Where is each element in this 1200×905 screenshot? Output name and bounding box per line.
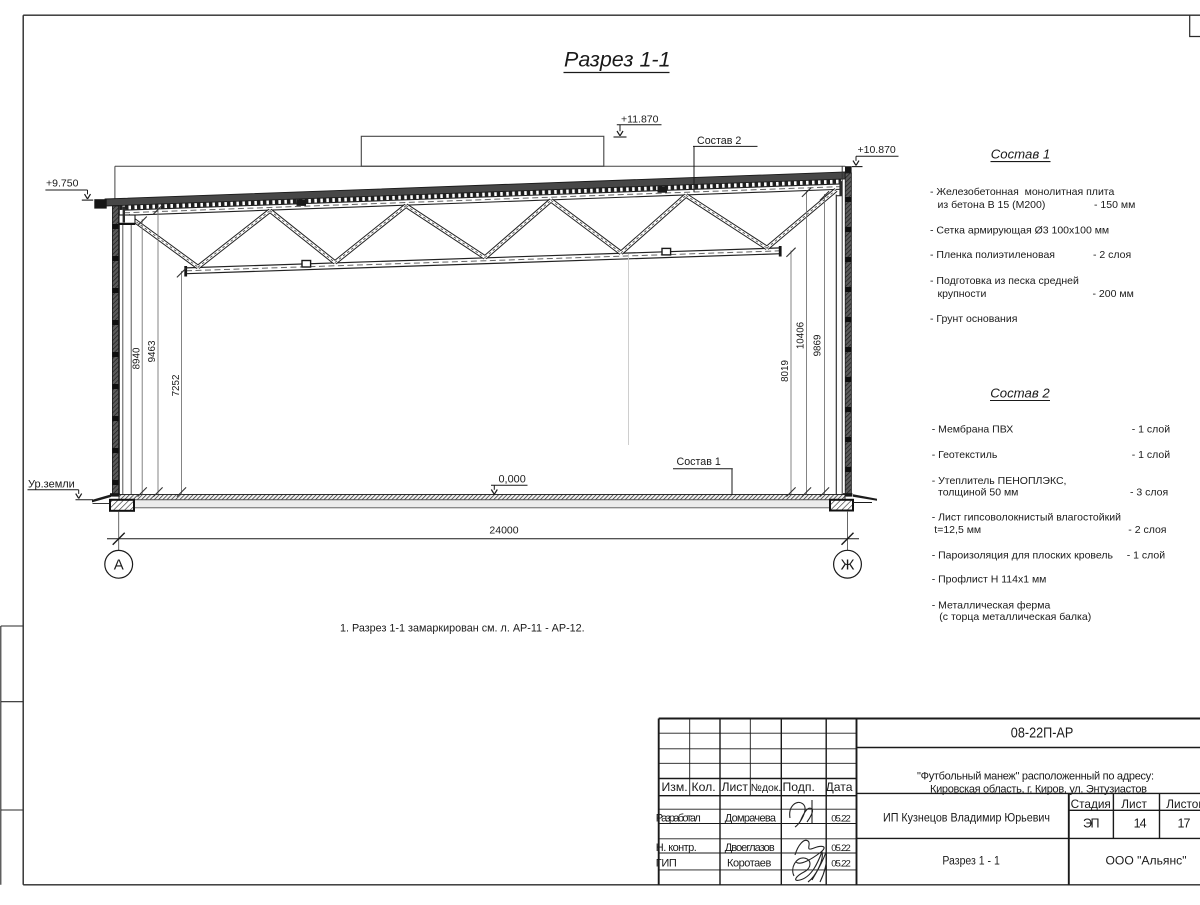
- svg-text:- Пленка полиэтиленовая: - Пленка полиэтиленовая: [930, 249, 1055, 261]
- svg-text:Состав 1: Состав 1: [991, 147, 1051, 162]
- svg-text:- 1 слой: - 1 слой: [1127, 550, 1166, 562]
- svg-text:9869: 9869: [813, 335, 824, 357]
- svg-text:- Железобетонная монолитная п: - Железобетонная монолитная плита: [930, 186, 1114, 198]
- svg-text:№док.: №док.: [751, 783, 781, 794]
- svg-text:14: 14: [1134, 817, 1147, 831]
- svg-text:0,000: 0,000: [499, 474, 526, 486]
- svg-text:1. Разрез 1-1 замаркирован см.: 1. Разрез 1-1 замаркирован см. л. АР-11 …: [340, 622, 585, 634]
- svg-text:Стадия: Стадия: [1071, 797, 1111, 811]
- svg-text:- Мембрана ПВХ: - Мембрана ПВХ: [932, 424, 1014, 436]
- svg-text:- 2 слоя: - 2 слоя: [1093, 249, 1131, 261]
- svg-text:7252: 7252: [171, 375, 182, 397]
- svg-text:Домрачева: Домрачева: [725, 812, 777, 824]
- svg-text:А: А: [114, 557, 124, 574]
- svg-text:t=12,5 мм: t=12,5 мм: [934, 524, 981, 536]
- svg-text:Разрез 1 - 1: Разрез 1 - 1: [942, 856, 999, 868]
- svg-text:Изм.: Изм.: [662, 780, 688, 794]
- svg-text:- 150 мм: - 150 мм: [1094, 199, 1135, 211]
- svg-text:Состав 2: Состав 2: [990, 385, 1050, 400]
- svg-text:Двоеглазов: Двоеглазов: [725, 842, 775, 854]
- svg-text:Ж: Ж: [841, 556, 855, 573]
- svg-text:ООО "Альянс": ООО "Альянс": [1106, 854, 1187, 868]
- svg-text:"Футбольный манеж" расположенн: "Футбольный манеж" расположенный по адре…: [917, 771, 1154, 783]
- svg-text:Лист: Лист: [722, 780, 749, 794]
- svg-text:- 1 слой: - 1 слой: [1132, 449, 1171, 461]
- svg-text:Разрез 1-1: Разрез 1-1: [564, 48, 671, 72]
- svg-text:- 2 слоя: - 2 слоя: [1128, 524, 1166, 536]
- svg-text:05.22: 05.22: [831, 843, 851, 854]
- svg-text:9463: 9463: [147, 340, 158, 362]
- svg-text:(с торца металлическая балка): (с торца металлическая балка): [939, 611, 1091, 623]
- svg-text:ГИП: ГИП: [656, 857, 677, 869]
- svg-text:крупности: крупности: [938, 288, 987, 300]
- svg-text:Кировская область, г. Киров, у: Кировская область, г. Киров, ул. Энтузиа…: [930, 784, 1147, 796]
- svg-text:8019: 8019: [780, 360, 791, 382]
- svg-text:- Пароизоляция для плоских кро: - Пароизоляция для плоских кровель: [932, 550, 1114, 562]
- svg-text:Ур.земли: Ур.земли: [28, 478, 75, 490]
- svg-text:- Геотекстиль: - Геотекстиль: [932, 449, 998, 461]
- svg-text:Состав 2: Состав 2: [697, 135, 741, 147]
- svg-text:Дата: Дата: [826, 780, 853, 794]
- svg-text:Коротаев: Коротаев: [727, 857, 771, 869]
- svg-text:Лист: Лист: [1121, 797, 1147, 811]
- svg-text:17: 17: [1178, 817, 1191, 831]
- svg-text:24000: 24000: [489, 525, 518, 537]
- svg-text:+10.870: +10.870: [858, 144, 896, 156]
- svg-text:ЭП: ЭП: [1083, 817, 1100, 831]
- svg-text:- Металлическая ферма: - Металлическая ферма: [932, 600, 1051, 612]
- svg-text:- Профлист Н 114х1 мм: - Профлист Н 114х1 мм: [932, 574, 1047, 586]
- svg-text:- Подготовка из песка средней: - Подготовка из песка средней: [930, 275, 1079, 287]
- svg-text:- Грунт основания: - Грунт основания: [930, 313, 1017, 325]
- svg-text:- 3 слоя: - 3 слоя: [1130, 486, 1168, 498]
- svg-text:Кол.: Кол.: [692, 780, 716, 794]
- svg-text:- 200 мм: - 200 мм: [1093, 288, 1134, 300]
- svg-text:из бетона В 15 (М200): из бетона В 15 (М200): [938, 199, 1046, 211]
- svg-text:Листов: Листов: [1166, 797, 1200, 811]
- svg-text:08-22П-АР: 08-22П-АР: [1011, 726, 1074, 742]
- svg-text:+11.870: +11.870: [621, 114, 659, 126]
- svg-text:+9.750: +9.750: [46, 178, 79, 190]
- svg-text:Разработал: Разработал: [656, 812, 701, 824]
- svg-text:8940: 8940: [131, 347, 142, 369]
- svg-text:толщиной 50 мм: толщиной 50 мм: [938, 486, 1018, 498]
- svg-text:- 1 слой: - 1 слой: [1132, 424, 1171, 436]
- svg-text:05.22: 05.22: [831, 813, 851, 824]
- svg-text:Состав 1: Состав 1: [677, 456, 721, 468]
- svg-text:10406: 10406: [796, 321, 807, 349]
- svg-text:- Сетка армирующая Ø3 100х100: - Сетка армирующая Ø3 100х100 мм: [930, 224, 1109, 236]
- svg-text:ИП Кузнецов Владимир Юрьевич: ИП Кузнецов Владимир Юрьевич: [883, 812, 1050, 824]
- svg-text:- Лист гипсоволокнистый влагос: - Лист гипсоволокнистый влагостойкий: [932, 511, 1121, 523]
- svg-text:- Утеплитель ПЕНОПЛЭКС,: - Утеплитель ПЕНОПЛЭКС,: [932, 475, 1067, 487]
- svg-text:Н. контр.: Н. контр.: [656, 842, 697, 854]
- svg-text:Подп.: Подп.: [783, 780, 815, 794]
- svg-text:05.22: 05.22: [831, 858, 851, 869]
